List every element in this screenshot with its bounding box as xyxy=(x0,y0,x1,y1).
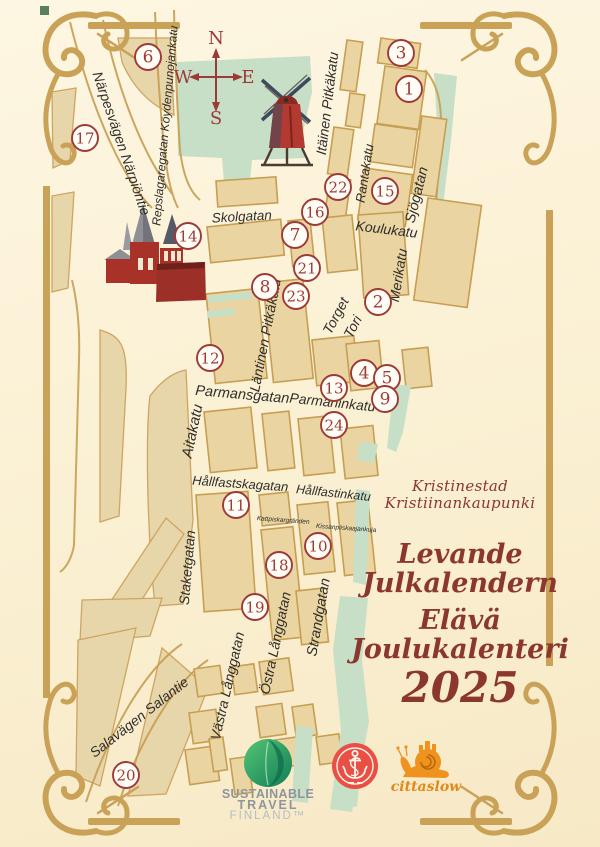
marker-2: 2 xyxy=(365,289,391,315)
marker-14: 14 xyxy=(175,223,201,249)
svg-text:16: 16 xyxy=(305,204,324,222)
svg-text:17: 17 xyxy=(75,130,94,148)
marker-17: 17 xyxy=(72,125,98,151)
sustainable-travel-finland-text: SUSTAINABLE TRAVEL FINLAND™ xyxy=(208,789,328,822)
svg-text:9: 9 xyxy=(380,390,391,410)
svg-text:15: 15 xyxy=(375,183,394,201)
svg-text:24: 24 xyxy=(324,417,343,435)
marker-13: 13 xyxy=(321,375,347,401)
poster: NSWE SkolgatanKoulukatuItäinen Pitkäkatu… xyxy=(0,0,600,847)
marker-16: 16 xyxy=(302,199,328,225)
svg-text:7: 7 xyxy=(290,226,301,246)
street-label-skolgatan: Skolgatan xyxy=(211,207,272,225)
marker-15: 15 xyxy=(372,178,398,204)
cittaslow-label: cittaslow xyxy=(376,779,476,795)
svg-text:11: 11 xyxy=(226,497,245,515)
svg-text:4: 4 xyxy=(359,364,370,384)
svg-text:20: 20 xyxy=(116,767,135,785)
marker-3: 3 xyxy=(388,40,414,66)
marker-20: 20 xyxy=(113,762,139,788)
marker-4: 4 xyxy=(351,360,377,386)
marker-21: 21 xyxy=(294,255,320,281)
marker-8: 8 xyxy=(252,274,278,300)
svg-text:8: 8 xyxy=(260,278,271,298)
street-label-parmansgatan: Parmansgatan xyxy=(195,383,290,407)
compass-north: N xyxy=(208,28,224,49)
svg-text:2: 2 xyxy=(373,293,384,313)
marker-22: 22 xyxy=(325,174,351,200)
svg-text:3: 3 xyxy=(396,44,407,64)
marker-9: 9 xyxy=(372,386,398,412)
svg-text:13: 13 xyxy=(324,380,343,398)
town-map-svg: NSWE SkolgatanKoulukatuItäinen Pitkäkatu… xyxy=(0,0,600,847)
marker-1: 1 xyxy=(396,76,422,102)
marker-18: 18 xyxy=(266,552,292,578)
street-label-h-llfastskagatan: Hållfastskagatan xyxy=(192,473,289,495)
cittaslow-snail-logo xyxy=(396,741,448,778)
svg-text:22: 22 xyxy=(328,179,347,197)
marker-7: 7 xyxy=(282,222,308,248)
marker-19: 19 xyxy=(242,594,268,620)
marker-11: 11 xyxy=(223,492,249,518)
svg-text:18: 18 xyxy=(269,557,288,575)
compass-east: E xyxy=(241,67,254,88)
marker-24: 24 xyxy=(321,412,347,438)
marker-10: 10 xyxy=(305,533,331,559)
svg-text:12: 12 xyxy=(200,350,219,368)
svg-text:23: 23 xyxy=(286,288,305,306)
marker-12: 12 xyxy=(197,345,223,371)
marker-6: 6 xyxy=(135,44,161,70)
svg-text:14: 14 xyxy=(178,228,197,246)
svg-text:19: 19 xyxy=(245,599,264,617)
compass-south: S xyxy=(210,108,222,129)
marker-23: 23 xyxy=(283,283,309,309)
svg-text:10: 10 xyxy=(308,538,327,556)
svg-text:6: 6 xyxy=(143,48,154,68)
kristinestad-anchor-badge xyxy=(332,743,378,789)
svg-text:21: 21 xyxy=(297,260,316,278)
street-label-h-llfastinkatu: Hållfastinkatu xyxy=(295,482,371,504)
svg-text:1: 1 xyxy=(404,80,415,100)
sustainable-travel-finland-logo xyxy=(244,739,292,787)
